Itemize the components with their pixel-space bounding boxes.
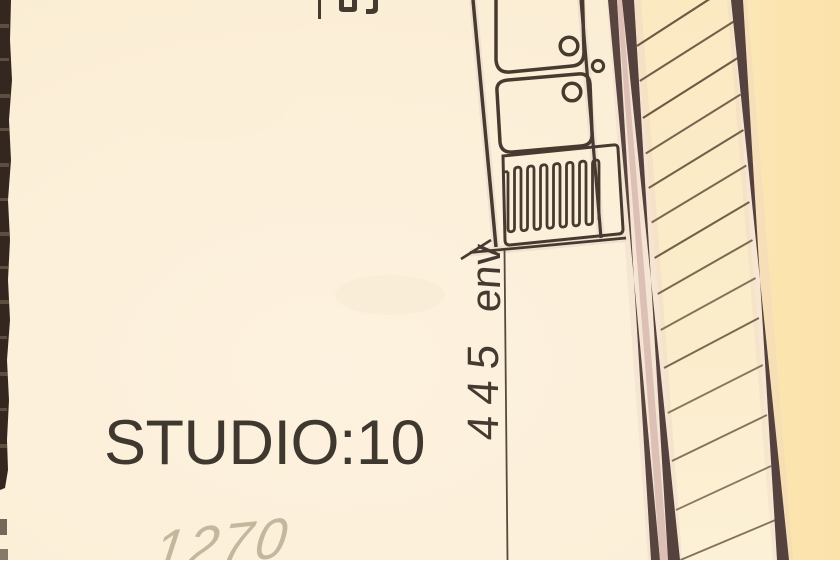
svg-text:env: env bbox=[462, 243, 509, 314]
svg-text:STUDIO:10: STUDIO:10 bbox=[104, 408, 425, 478]
svg-text:445: 445 bbox=[459, 332, 508, 442]
